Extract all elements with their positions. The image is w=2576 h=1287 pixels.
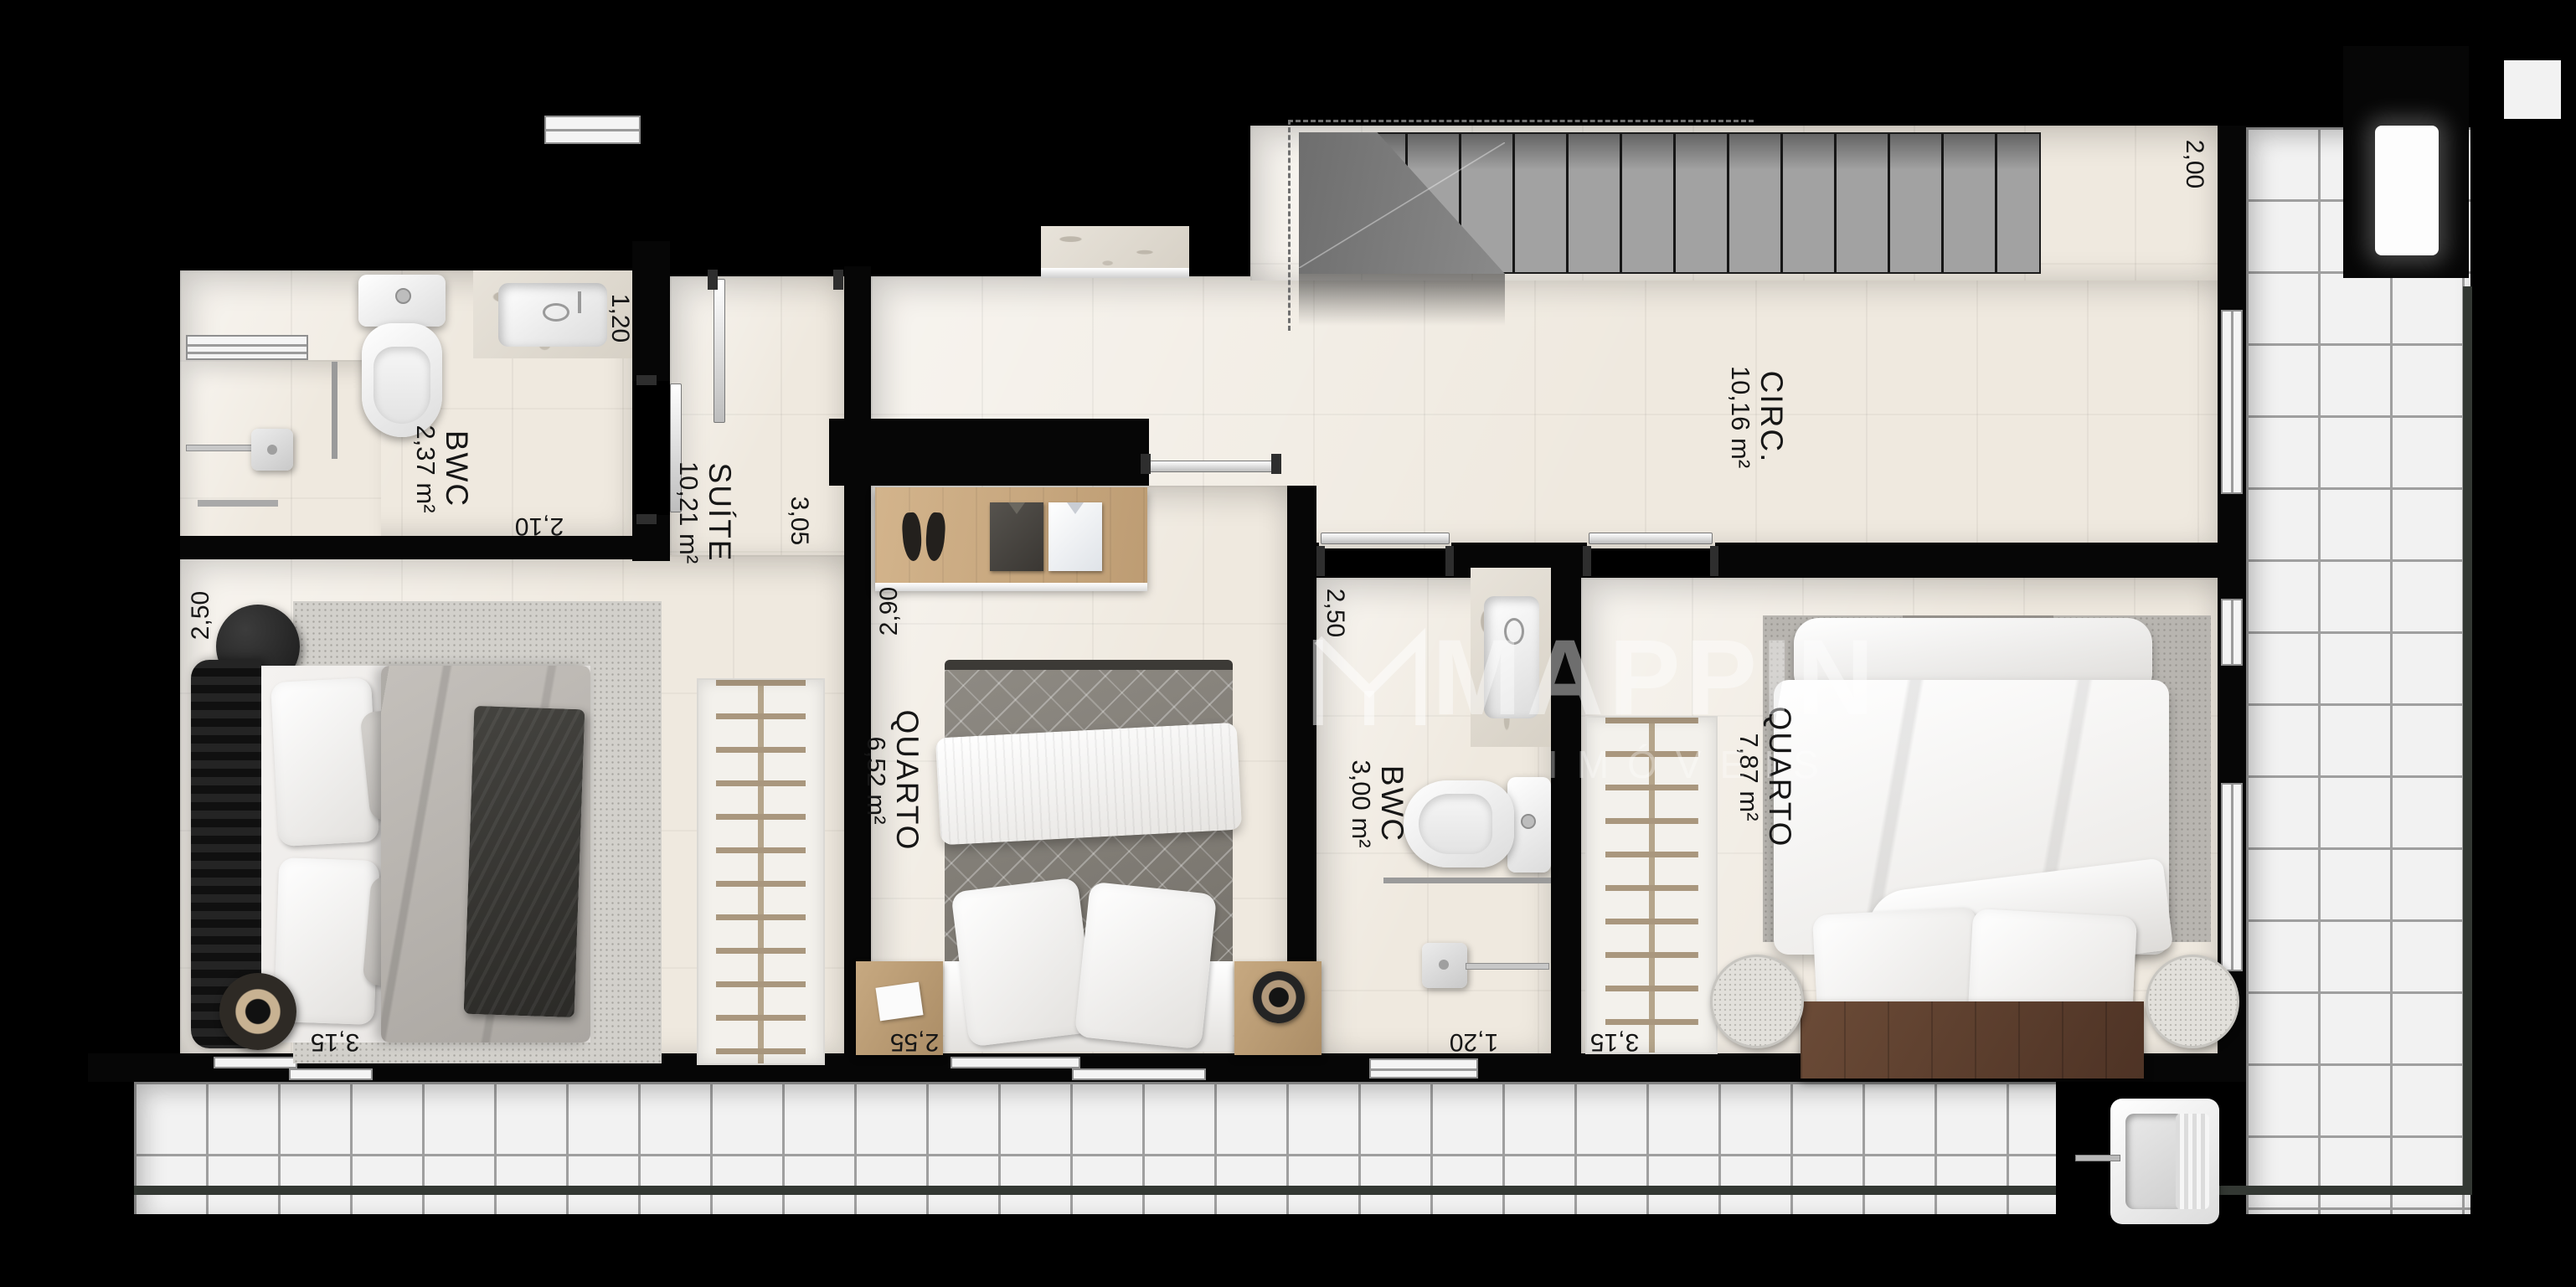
dim-bwc2-left: 2,50 xyxy=(1321,589,1349,637)
wall-bwc-suite-bottom xyxy=(180,536,670,559)
roof-corner-panel xyxy=(2504,60,2561,119)
dim-quarto1-bottom: 2,55 xyxy=(890,1027,939,1056)
label-bwc-suite: BWC 2,37 m² xyxy=(410,425,474,512)
label-circ: CIRC. 10,16 m² xyxy=(1725,366,1789,468)
suite-speaker xyxy=(219,973,296,1050)
terrace-right xyxy=(2246,127,2470,1214)
suite-throw-blanket xyxy=(464,706,585,1017)
suite-wardrobe xyxy=(697,678,825,1065)
quarto1-sheet-band xyxy=(935,723,1242,846)
skylight-window xyxy=(2375,126,2439,255)
bwc2-shower-arm xyxy=(1466,963,1549,970)
label-suite: SUÍTE 10,21 m² xyxy=(673,461,737,564)
wall-bwc-suite-right xyxy=(632,241,670,381)
label-bwc-suite-name: BWC xyxy=(440,425,474,512)
bwc2-glass xyxy=(1383,878,1551,883)
label-circ-name: CIRC. xyxy=(1754,366,1789,468)
service-patch xyxy=(2056,1082,2119,1287)
bwc-suite-shower-arm xyxy=(186,445,258,451)
label-quarto2-area: 7,87 m² xyxy=(1734,707,1763,848)
wall-circ-bottom-a xyxy=(1287,543,1319,578)
label-bwc2-name: BWC xyxy=(1375,759,1409,847)
dim-quarto2-bottom: 3,15 xyxy=(1590,1027,1639,1056)
label-suite-name: SUÍTE xyxy=(703,461,737,564)
window-quarto2-right-large xyxy=(2221,783,2243,971)
label-bwc-suite-area: 2,37 m² xyxy=(410,425,440,512)
window-bwc2 xyxy=(1369,1058,1478,1079)
label-circ-area: 10,16 m² xyxy=(1725,366,1754,468)
window-quarto2-right-small xyxy=(2221,599,2243,666)
quarto2-pouf-right xyxy=(2146,955,2239,1048)
label-quarto2: QUARTO 7,87 m² xyxy=(1734,707,1797,848)
stairs-void-outline-top xyxy=(1288,120,1754,122)
wall-suite-right xyxy=(844,266,871,1057)
label-bwc2-area: 3,00 m² xyxy=(1346,759,1375,847)
dim-suite-left: 2,50 xyxy=(187,591,215,640)
stairs-void-outline-left xyxy=(1288,120,1291,331)
wall-bwc2-quarto2 xyxy=(1551,548,1581,1057)
dim-suite-hall: 3,05 xyxy=(785,497,813,545)
label-bwc2: BWC 3,00 m² xyxy=(1346,759,1409,847)
window-circ-right xyxy=(2221,310,2243,494)
dim-bwc-suite-bottom: 2,10 xyxy=(515,512,564,540)
quarto2-wardrobe xyxy=(1585,716,1718,1054)
quarto2-pouf-left xyxy=(1710,955,1804,1048)
laundry-faucet xyxy=(2075,1155,2120,1161)
circ-counter-edge xyxy=(1041,268,1189,278)
dim-circ-right: 2,00 xyxy=(2180,140,2208,188)
dim-bwc-suite-side: 1,20 xyxy=(605,294,634,342)
dim-bwc2-bottom: 1,20 xyxy=(1450,1027,1498,1056)
stairs-under-shadow xyxy=(1299,274,1505,326)
terrace-parapet-right xyxy=(2463,286,2472,1195)
wall-quarto1-top xyxy=(829,419,1149,486)
label-quarto1: QUARTO 6,52 m² xyxy=(861,710,925,852)
label-suite-area: 10,21 m² xyxy=(673,461,703,564)
quarto2-bed-base xyxy=(1801,1001,2144,1079)
bwc-suite-mat xyxy=(198,500,278,507)
window-suite-balcony-b xyxy=(289,1068,373,1080)
window-bwc-suite xyxy=(186,335,308,360)
floor-plan-canvas: BWC 2,37 m² SUÍTE 10,21 m² QUARTO 6,52 m… xyxy=(0,0,2576,1287)
label-quarto2-name: QUARTO xyxy=(1763,707,1797,848)
circ-counter xyxy=(1041,226,1189,270)
label-quarto1-area: 6,52 m² xyxy=(861,710,890,852)
dim-suite-bottom: 3,15 xyxy=(311,1027,359,1056)
label-quarto1-name: QUARTO xyxy=(890,710,925,852)
window-suite-balcony-a xyxy=(214,1057,297,1068)
quarto1-speaker xyxy=(1253,971,1305,1023)
wall-circ-bottom-c xyxy=(1715,543,2218,578)
window-hall-high xyxy=(544,116,641,144)
dim-quarto1-left: 2,90 xyxy=(875,587,904,636)
bwc2-basin xyxy=(1484,596,1539,718)
bwc-suite-faucet xyxy=(578,291,581,313)
bwc-suite-glass xyxy=(332,362,337,459)
window-quarto1-balcony-b xyxy=(1072,1068,1206,1080)
window-quarto1-balcony-a xyxy=(951,1057,1080,1068)
